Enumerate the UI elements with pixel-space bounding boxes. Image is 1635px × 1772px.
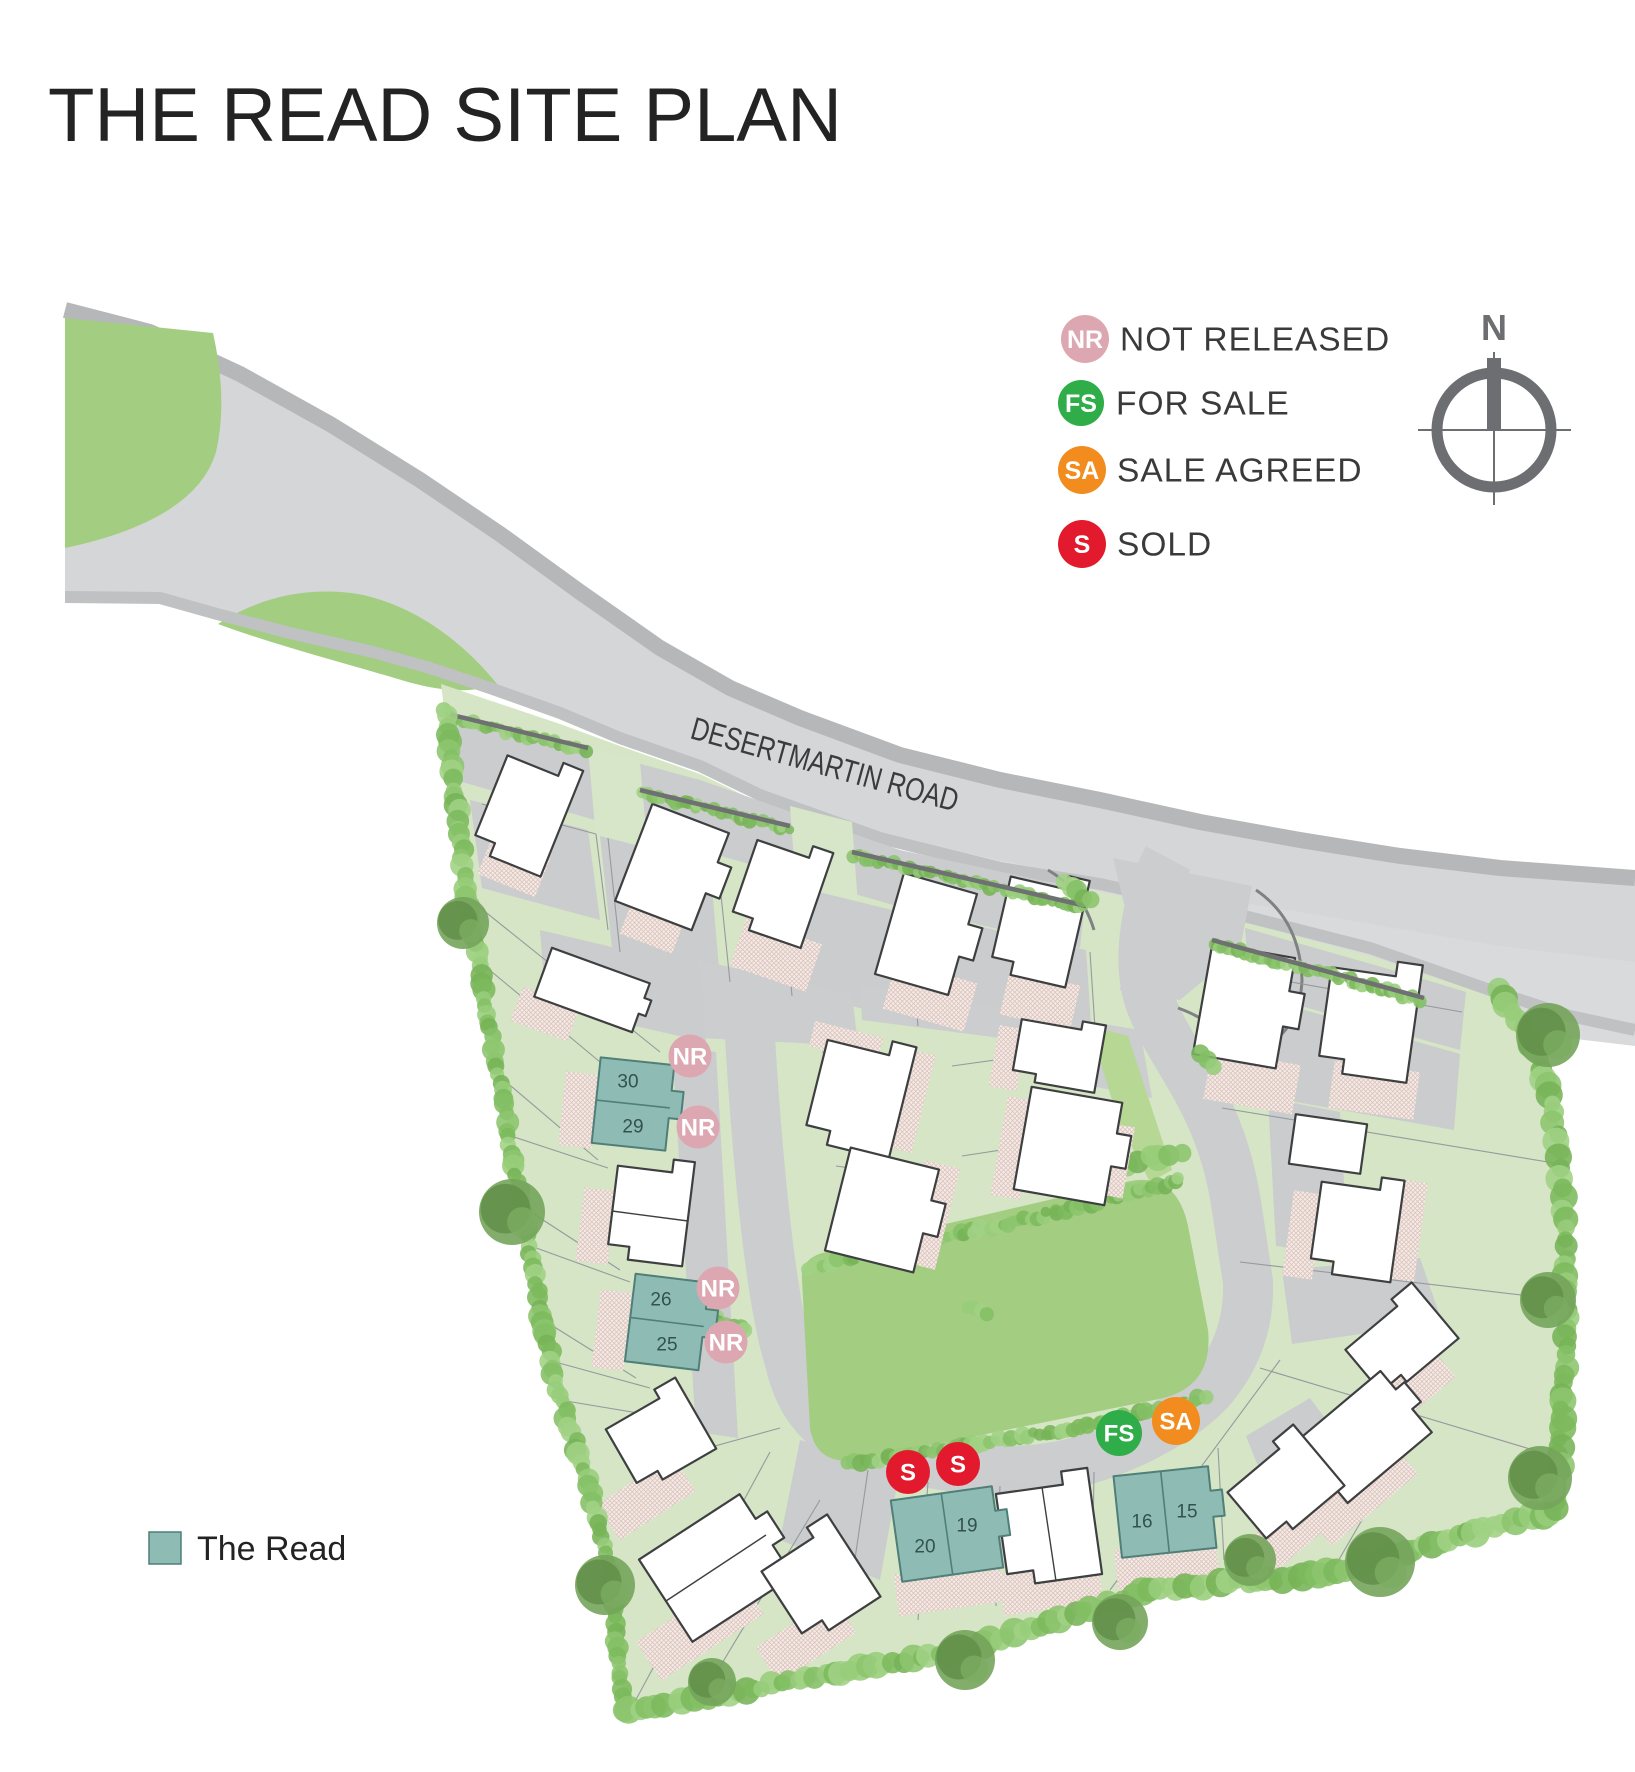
svg-text:NOT RELEASED: NOT RELEASED (1120, 322, 1390, 359)
svg-text:30: 30 (617, 1072, 638, 1093)
svg-text:SALE AGREED: SALE AGREED (1117, 453, 1363, 490)
svg-text:SOLD: SOLD (1117, 527, 1212, 564)
svg-text:S: S (950, 1452, 966, 1479)
svg-text:SA: SA (1159, 1409, 1192, 1436)
svg-text:S: S (1074, 531, 1091, 559)
svg-text:NR: NR (1067, 326, 1103, 354)
svg-text:NR: NR (681, 1115, 716, 1142)
svg-text:THE READ SITE PLAN: THE READ SITE PLAN (48, 73, 842, 158)
svg-text:NR: NR (673, 1044, 708, 1071)
svg-text:S: S (900, 1460, 916, 1487)
svg-text:N: N (1481, 307, 1507, 348)
svg-text:FS: FS (1104, 1421, 1135, 1448)
svg-text:FOR SALE: FOR SALE (1116, 386, 1290, 423)
svg-text:29: 29 (622, 1117, 643, 1138)
svg-text:FS: FS (1065, 390, 1097, 418)
svg-text:SA: SA (1065, 457, 1100, 485)
svg-text:25: 25 (656, 1335, 677, 1356)
svg-text:NR: NR (701, 1276, 736, 1303)
svg-text:26: 26 (650, 1290, 671, 1311)
svg-text:20: 20 (914, 1537, 935, 1558)
svg-text:NR: NR (709, 1330, 744, 1357)
svg-text:The Read: The Read (197, 1530, 346, 1568)
svg-text:16: 16 (1131, 1512, 1152, 1533)
svg-text:19: 19 (956, 1516, 977, 1537)
svg-text:15: 15 (1176, 1502, 1197, 1523)
